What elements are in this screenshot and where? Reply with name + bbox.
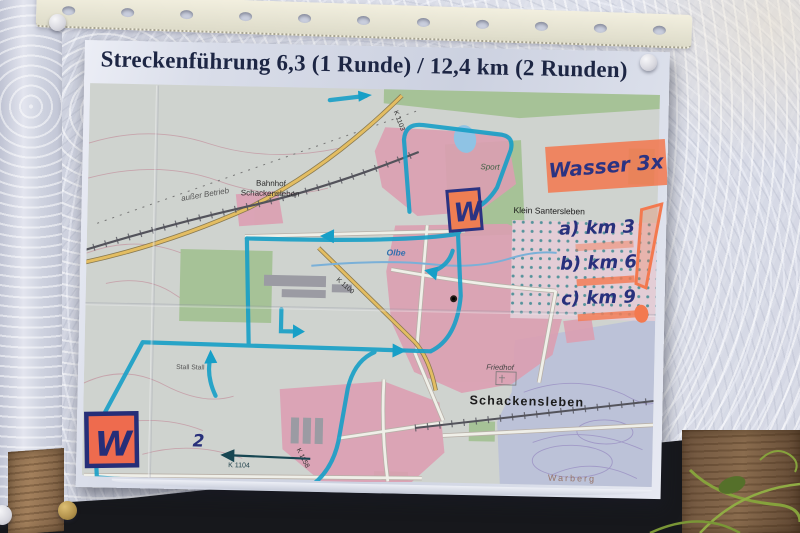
wood-post-left [8,448,64,533]
label-sport: Sport [480,162,500,171]
sleeve-hole [121,7,134,16]
label-klein-santersleben: Klein Santersleben [513,205,585,216]
highlight-strip [576,275,634,286]
label-bahnhof-2: Schackensleben [241,188,300,198]
water-station-box-bottom: W [86,413,137,466]
label-schackensleben: Schackensleben [469,393,584,409]
pushpin-bottom-gold [58,501,77,520]
pushpin-top-left [49,14,66,31]
sleeve-hole [357,15,370,24]
sleeve-hole [180,9,193,18]
sleeve-hole [239,11,252,20]
pushpin-top-right [640,54,657,71]
sleeve-hole [594,23,607,32]
sleeve-hole [62,5,75,14]
route-map-sheet: Streckenführung 6,3 (1 Runde) / 12,4 km … [76,40,670,499]
label-bahnhof: Bahnhof [256,179,287,189]
hand-lap-number: 2 [192,431,204,451]
wasser-text: Wasser 3x [548,149,665,183]
sleeve-hole [653,25,666,34]
highlight-strip [575,240,633,251]
page-title: Streckenführung 6,3 (1 Runde) / 12,4 km … [100,46,660,83]
label-k1104: K 1104 [228,462,250,469]
exclamation-mark [627,201,666,334]
label-warberg: Warberg [548,473,596,484]
photo-scene: Streckenführung 6,3 (1 Runde) / 12,4 km … [0,0,800,533]
svg-text:W: W [453,196,485,228]
sleeve-hole [475,19,488,28]
svg-text:W: W [94,424,134,465]
sleeve-hole [535,21,548,30]
water-station-box-top: W [447,188,485,231]
label-olbe: Olbe [387,247,406,257]
wasser-annotation: Wasser 3x [545,139,668,193]
sleeve-hole [298,13,311,22]
sleeve-hole [416,17,429,26]
label-friedhof: Friedhof [486,362,515,372]
label-stall: Stall Stall [176,364,205,372]
